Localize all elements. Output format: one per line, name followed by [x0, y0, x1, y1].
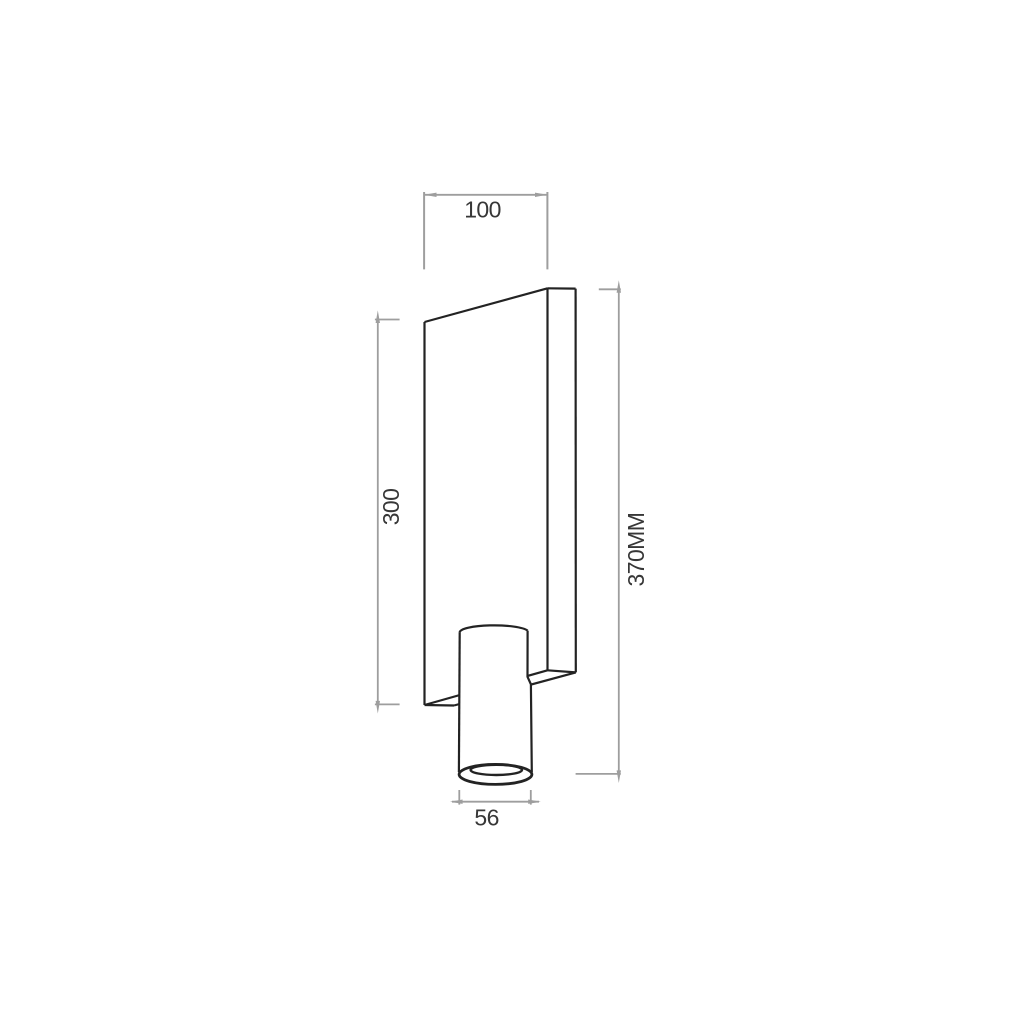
svg-text:300: 300 [378, 489, 404, 526]
svg-text:370MM: 370MM [623, 513, 649, 587]
svg-text:100: 100 [464, 196, 501, 222]
svg-text:56: 56 [474, 805, 498, 831]
